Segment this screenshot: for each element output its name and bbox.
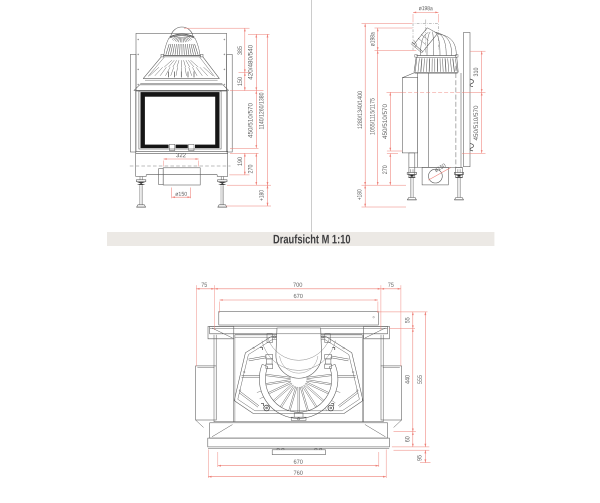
svg-text:ø198a: ø198a <box>419 6 434 12</box>
svg-text:1140/1260/1380: 1140/1260/1380 <box>260 92 266 130</box>
svg-text:450/510/570: 450/510/570 <box>383 103 389 139</box>
svg-text:270: 270 <box>249 164 255 174</box>
svg-text:190: 190 <box>238 156 244 166</box>
svg-text:450/510/570: 450/510/570 <box>249 102 255 138</box>
svg-text:760: 760 <box>293 471 303 477</box>
svg-text:670: 670 <box>293 294 303 300</box>
svg-text:670: 670 <box>293 460 303 466</box>
svg-text:75: 75 <box>201 283 208 289</box>
svg-text:75: 75 <box>388 283 395 289</box>
svg-text:385: 385 <box>238 45 244 55</box>
svg-text:440: 440 <box>405 374 411 384</box>
svg-text:420/480/540: 420/480/540 <box>249 44 255 80</box>
svg-text:1280/1340/1400: 1280/1340/1400 <box>358 90 364 129</box>
svg-text:270: 270 <box>383 165 389 175</box>
svg-text:1055/1115/1175: 1055/1115/1175 <box>370 97 376 135</box>
svg-text:55: 55 <box>405 317 411 324</box>
svg-text:700: 700 <box>293 283 303 289</box>
svg-text:+180: +180 <box>260 189 266 201</box>
svg-text:322: 322 <box>176 153 187 159</box>
svg-text:95: 95 <box>417 454 423 461</box>
svg-text:ø150: ø150 <box>175 192 187 198</box>
svg-text:+180: +180 <box>358 189 364 201</box>
svg-text:150: 150 <box>238 76 244 86</box>
svg-text:Draufsicht M 1:10: Draufsicht M 1:10 <box>273 232 351 246</box>
svg-text:555: 555 <box>418 374 424 384</box>
svg-text:450/510/570: 450/510/570 <box>474 105 480 141</box>
svg-text:310: 310 <box>474 67 480 77</box>
svg-text:60: 60 <box>405 436 411 443</box>
svg-text:ø198a: ø198a <box>370 32 376 47</box>
